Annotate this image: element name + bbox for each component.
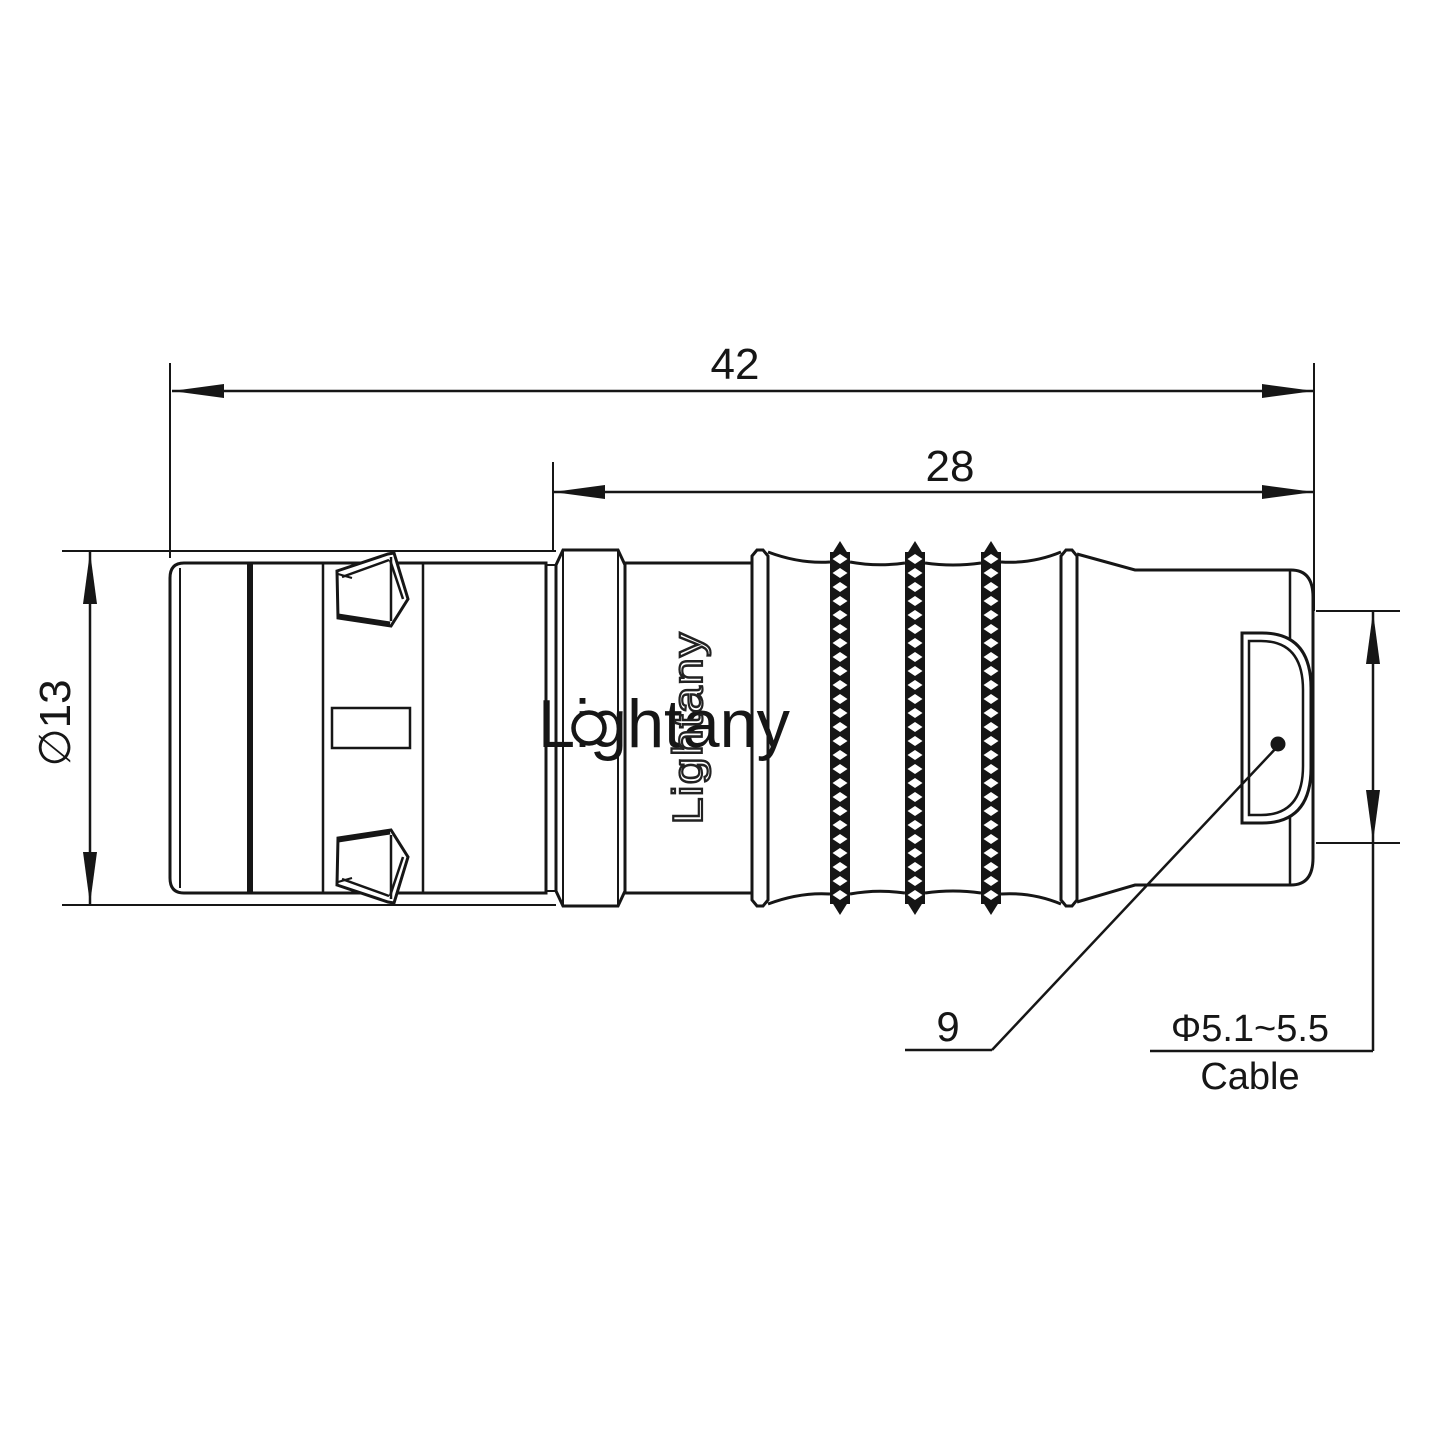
cable-word-label: Cable bbox=[1200, 1056, 1299, 1098]
dimension-rear-length: 28 bbox=[553, 442, 1314, 550]
knurl-band-3 bbox=[981, 541, 1001, 915]
knurl-band-2 bbox=[905, 541, 925, 915]
technical-drawing-page: Lightany bbox=[0, 0, 1440, 1440]
dim-42-label: 42 bbox=[711, 340, 760, 389]
dim-28-label: 28 bbox=[926, 442, 975, 491]
dim-dia13-label: ∅13 bbox=[31, 679, 80, 766]
connector-technical-drawing: Lightany bbox=[0, 0, 1440, 1440]
index-hole bbox=[574, 713, 605, 744]
cable-entry-window bbox=[1242, 633, 1311, 823]
callout-9-label: 9 bbox=[936, 1003, 959, 1050]
knurl-band-1 bbox=[830, 541, 850, 915]
shell-notch bbox=[332, 708, 410, 748]
engraving-text: Lightany bbox=[664, 632, 711, 825]
cable-range-label: Φ5.1~5.5 bbox=[1171, 1008, 1329, 1050]
leader-dot bbox=[1271, 737, 1286, 752]
